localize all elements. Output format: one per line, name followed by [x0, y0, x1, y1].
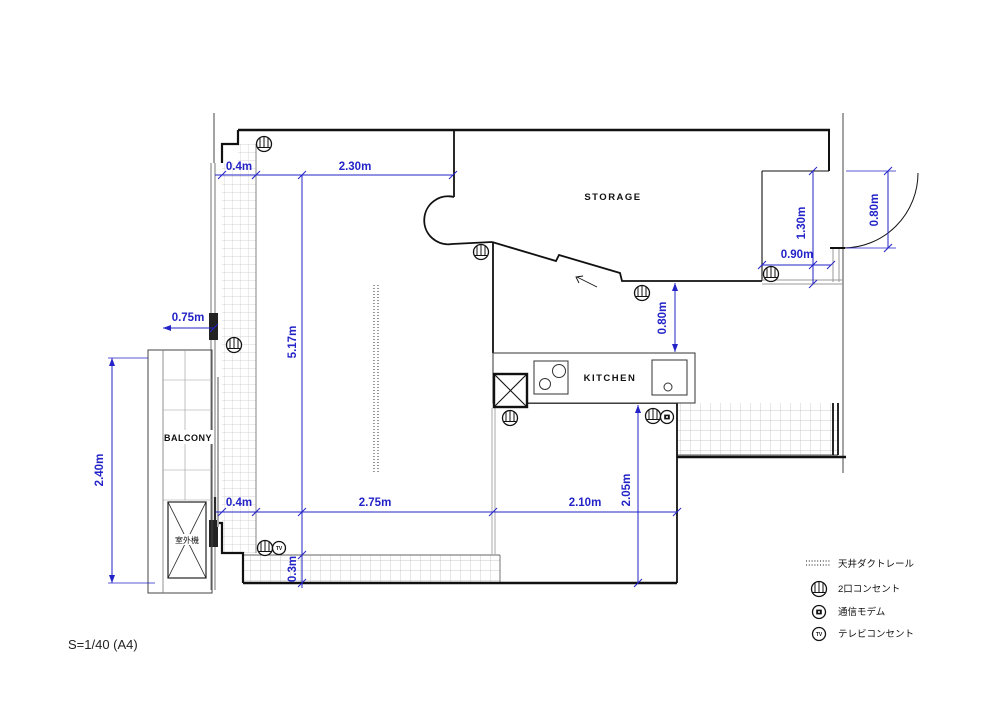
stove	[534, 361, 568, 394]
dim-label-balcony-depth: 0.75m	[172, 312, 205, 324]
storage-diagonal-wall	[492, 242, 762, 281]
south-sill-hatch	[243, 555, 500, 583]
outdoor-unit: 室外機	[168, 502, 206, 578]
floor-plan-svg: TV BALCONY	[0, 0, 1000, 707]
outlet-icon	[764, 267, 779, 282]
tv-outlet-icon	[273, 542, 286, 555]
legend: 天井ダクトレール 2口コンセント 通信モデム テレビコンセント	[806, 558, 915, 641]
outlet-icon	[257, 137, 272, 152]
room-label-kitchen: KITCHEN	[584, 373, 637, 384]
legend-label-duct-rail: 天井ダクトレール	[838, 558, 915, 570]
balcony-tile-lines	[163, 350, 212, 500]
dim-label-balcony-length: 2.40m	[94, 454, 106, 487]
dim-label-living-width: 2.75m	[359, 497, 392, 509]
outlet-icon	[474, 245, 489, 260]
duct-rail-legend-icon	[806, 561, 830, 565]
dim-label-alcove-depth: 1.30m	[796, 207, 808, 240]
dim-label-dining-depth: 2.05m	[621, 474, 633, 507]
scale-note: S=1/40 (A4)	[68, 637, 138, 652]
outlet-icon	[503, 411, 518, 426]
outdoor-unit-label: 室外機	[175, 535, 199, 545]
dim-label-hall-gap: 0.80m	[657, 302, 669, 335]
dim-label-room-height: 5.17m	[287, 326, 299, 359]
pillar	[494, 374, 527, 407]
dim-label-entry-door: 0.80m	[869, 194, 881, 227]
window-mullion-upper	[209, 313, 218, 340]
curved-wall	[424, 196, 492, 244]
dim-label-alcove-width: 0.90m	[781, 249, 814, 261]
outlet-icon	[227, 338, 242, 353]
room-label-storage: STORAGE	[584, 192, 641, 203]
dim-label-wall-top: 0.4m	[226, 161, 252, 173]
legend-label-modem: 通信モデム	[838, 606, 885, 618]
outlet-icon	[646, 409, 661, 424]
dim-label-sill-depth: 0.3m	[287, 556, 299, 582]
ceiling-duct-rail	[374, 285, 378, 472]
modem-legend-icon	[813, 606, 826, 619]
dim-label-wall-bottom: 0.4m	[226, 497, 252, 509]
sink	[652, 360, 687, 395]
outlet-legend-icon	[812, 582, 827, 597]
legend-label-tv-outlet: テレビコンセント	[838, 629, 914, 640]
dim-label-top-width: 2.30m	[339, 161, 372, 173]
living-dining-partition	[492, 408, 495, 555]
room-label-balcony: BALCONY	[164, 433, 212, 443]
modem-icon	[661, 411, 674, 424]
floor-plan-page: TV BALCONY	[0, 0, 1000, 707]
outlet-icon	[258, 541, 273, 556]
outlet-icon	[635, 286, 650, 301]
dim-label-dining-width: 2.10m	[569, 497, 602, 509]
window-mullion-lower	[209, 520, 218, 547]
wall-below-entry-door	[833, 248, 839, 282]
entry-tile-floor	[677, 403, 838, 455]
legend-label-outlet: 2口コンセント	[838, 584, 900, 595]
storage-arrow	[576, 276, 597, 287]
northwest-step-wall	[222, 130, 238, 163]
tv-outlet-legend-icon	[813, 628, 826, 641]
